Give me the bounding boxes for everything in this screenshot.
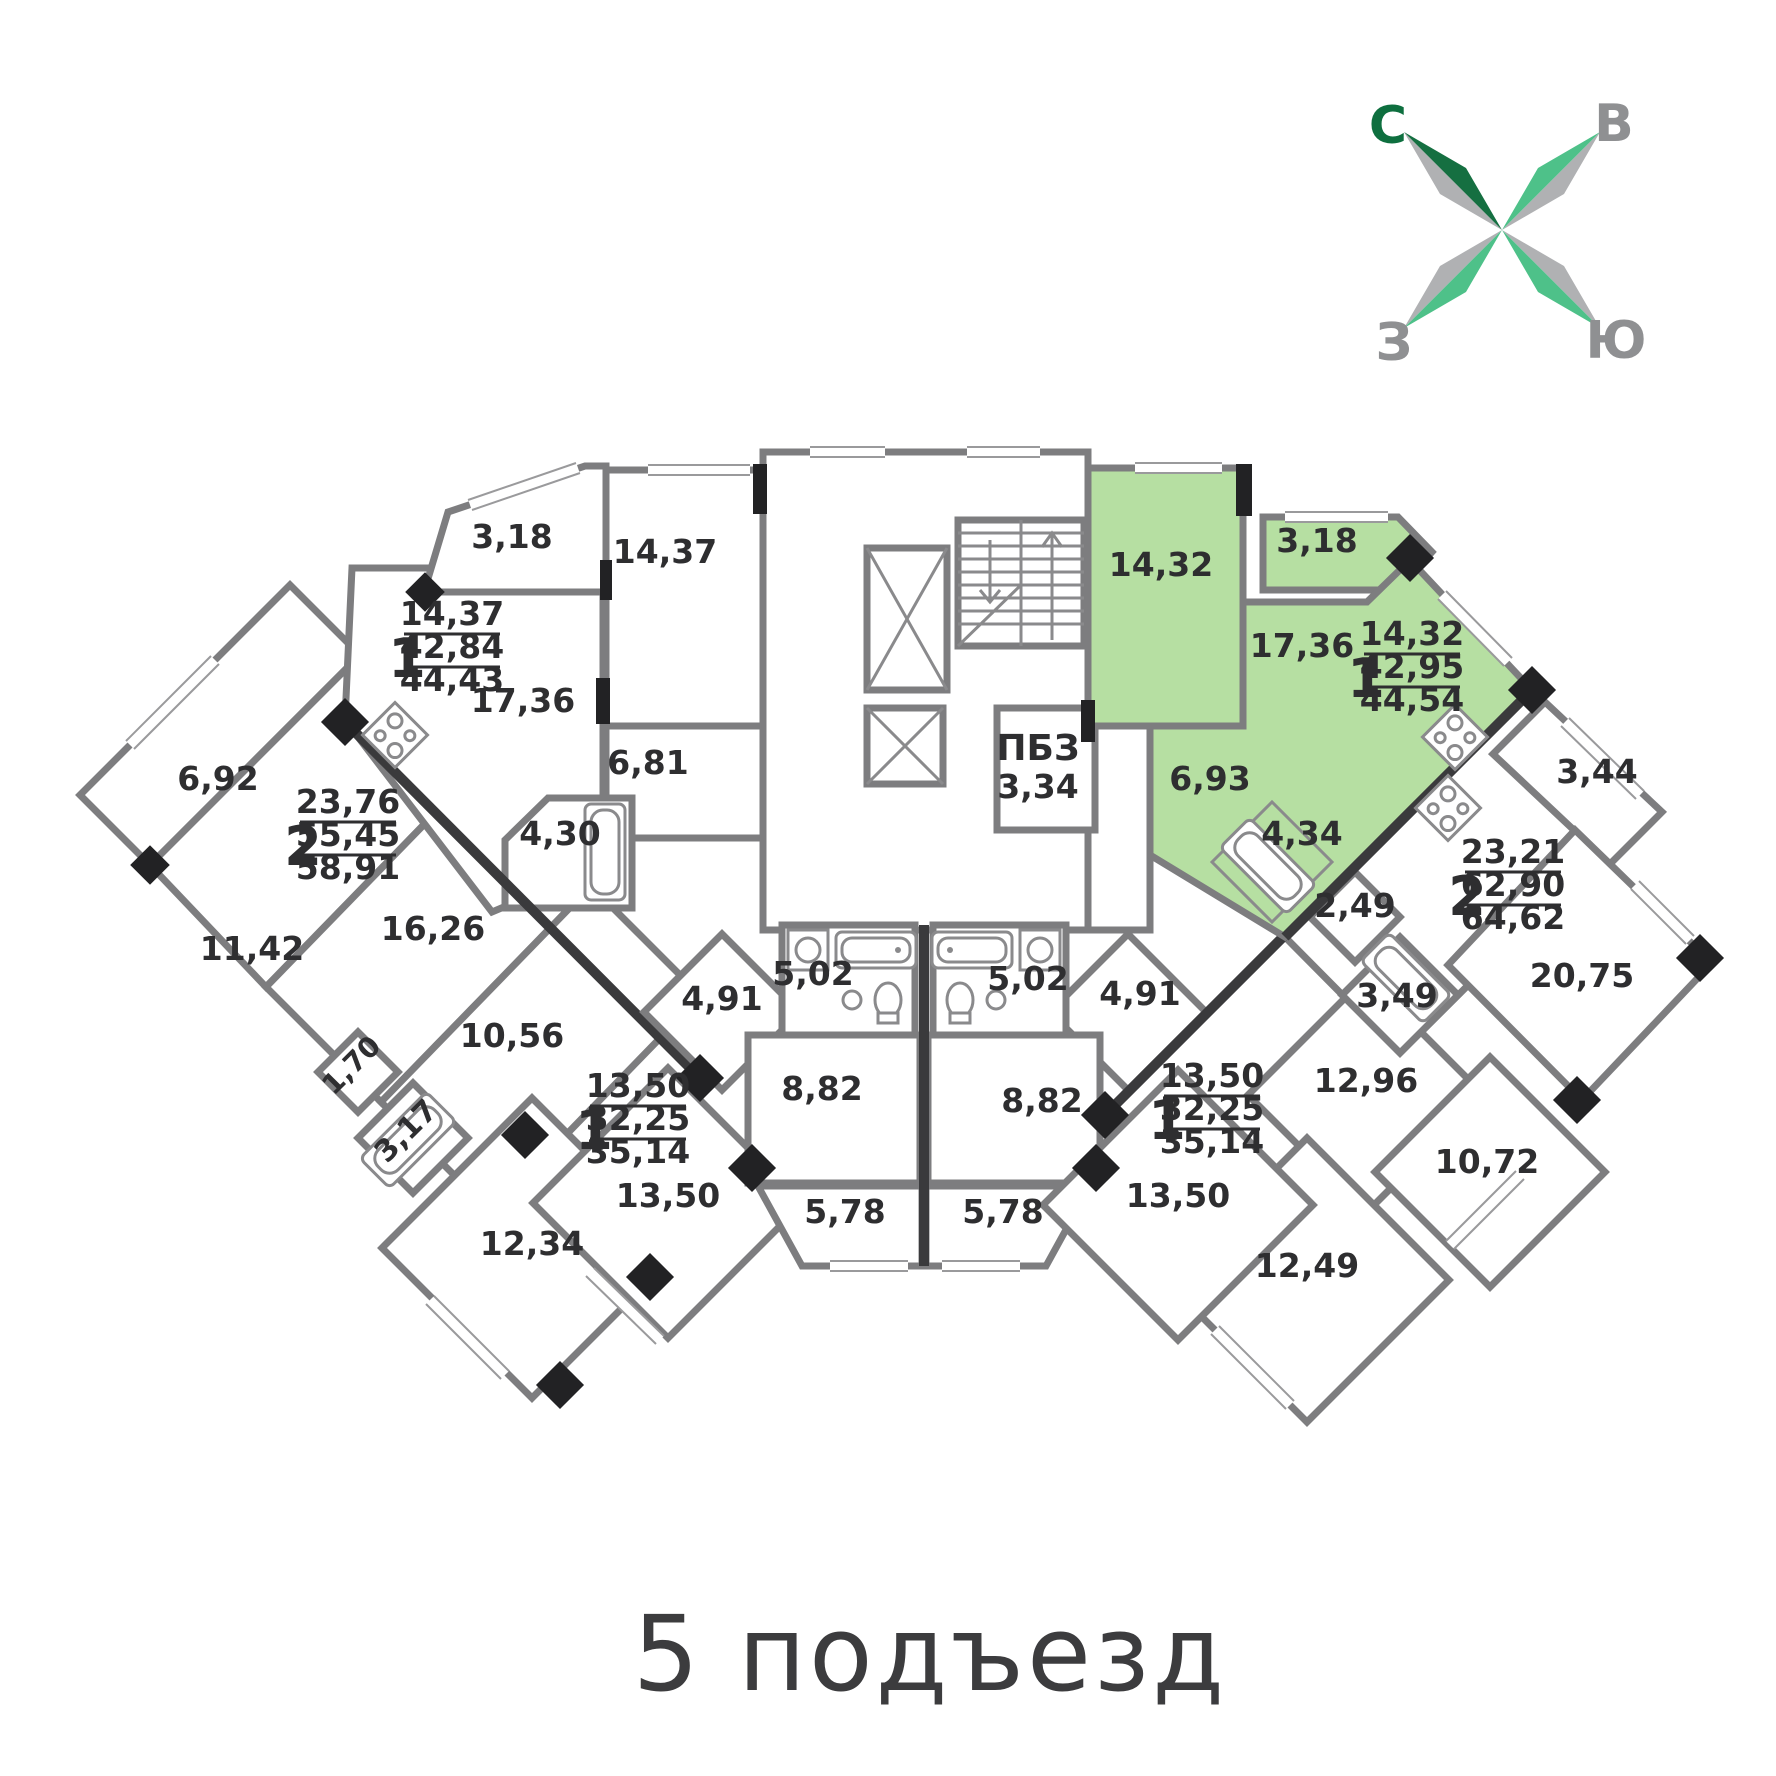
room-area-label: 4,91: [681, 979, 762, 1018]
apartment-area-value: 58,91: [296, 848, 400, 887]
compass-south-label: Ю: [1585, 311, 1646, 371]
apartment-area-value: 64,62: [1461, 898, 1565, 937]
page-title: 5 подъезд: [633, 1593, 1227, 1715]
apartment-area-value: 44,43: [400, 660, 504, 699]
room-area-label: 13,50: [616, 1176, 720, 1215]
room-area-label: 5,78: [804, 1192, 885, 1231]
room-area-label: 12,34: [480, 1224, 584, 1263]
room-area-label: 8,82: [1001, 1081, 1082, 1120]
window: [967, 447, 1040, 457]
room-area-label: 3,49: [1356, 976, 1437, 1015]
room-area-label: 6,92: [177, 759, 258, 798]
room-area-label: 2,49: [1314, 886, 1395, 925]
compass-north-label: С: [1369, 96, 1407, 156]
apartment-label: 223,2162,9064,62: [1448, 832, 1565, 937]
window: [648, 465, 750, 475]
apartment-area-value: 35,14: [1160, 1122, 1264, 1161]
room-area-label: 10,72: [1435, 1142, 1539, 1181]
floor-plan-page: С В З Ю 3,1814,3717,366,814,306,9211,421…: [0, 0, 1776, 1776]
compass-west-label: З: [1376, 313, 1413, 373]
room-area-label: 4,34: [1261, 814, 1342, 853]
room-area-label: 16,26: [381, 909, 485, 948]
room-area-label: 4,91: [1099, 974, 1180, 1013]
apartment-label: 113,5032,2535,14: [1148, 1056, 1264, 1161]
room-area-label: 12,49: [1255, 1246, 1359, 1285]
room-area-label: 14,37: [613, 532, 717, 571]
apartment-area-value: 44,54: [1360, 680, 1464, 719]
window: [942, 1261, 1020, 1271]
window: [1135, 463, 1222, 473]
room-area-label: 6,93: [1169, 759, 1250, 798]
room-1437: [606, 470, 763, 726]
room-area-label: 3,44: [1556, 752, 1637, 791]
apartment-label: 114,3742,8444,43: [388, 594, 504, 699]
room-area-label: 5,02: [772, 954, 853, 993]
compass-east-label: В: [1594, 94, 1634, 154]
room-area-label: 20,75: [1530, 956, 1634, 995]
room-area-label: 3,18: [471, 517, 552, 556]
room-area-label: ПБЗ: [996, 728, 1079, 769]
room-882-left: [748, 1035, 920, 1183]
apartment-label: 114,3242,9544,54: [1347, 614, 1464, 719]
toilet-icon: [875, 983, 901, 1023]
room-area-label: 13,50: [1126, 1176, 1230, 1215]
room-area-label: 17,36: [1250, 626, 1354, 665]
room-area-label: 10,56: [460, 1016, 564, 1055]
room-area-label: 12,96: [1314, 1061, 1418, 1100]
room-area-label: 5,78: [962, 1192, 1043, 1231]
room-area-label: 5,02: [987, 959, 1068, 998]
green-room-1432: [1088, 468, 1243, 726]
building-core: [606, 452, 1150, 930]
apartment-label: 113,5032,2535,14: [575, 1066, 690, 1171]
room-area-label: 3,34: [997, 767, 1078, 806]
window: [830, 1261, 908, 1271]
room-area-label: 8,82: [781, 1069, 862, 1108]
toilet-icon: [947, 983, 973, 1023]
room-area-label: 3,18: [1276, 521, 1357, 560]
window: [810, 447, 885, 457]
room-area-label: 4,30: [519, 814, 600, 853]
room-area-label: 11,42: [200, 929, 304, 968]
room-area-label: 6,81: [607, 743, 688, 782]
floor-plan-svg: С В З Ю 3,1814,3717,366,814,306,9211,421…: [0, 0, 1776, 1776]
compass-rose: С В З Ю: [1369, 94, 1647, 373]
apartment-area-value: 35,14: [586, 1132, 690, 1171]
room-area-label: 14,32: [1109, 545, 1213, 584]
apartment-label: 223,7655,4558,91: [284, 782, 400, 887]
sink-icon: [843, 991, 861, 1009]
